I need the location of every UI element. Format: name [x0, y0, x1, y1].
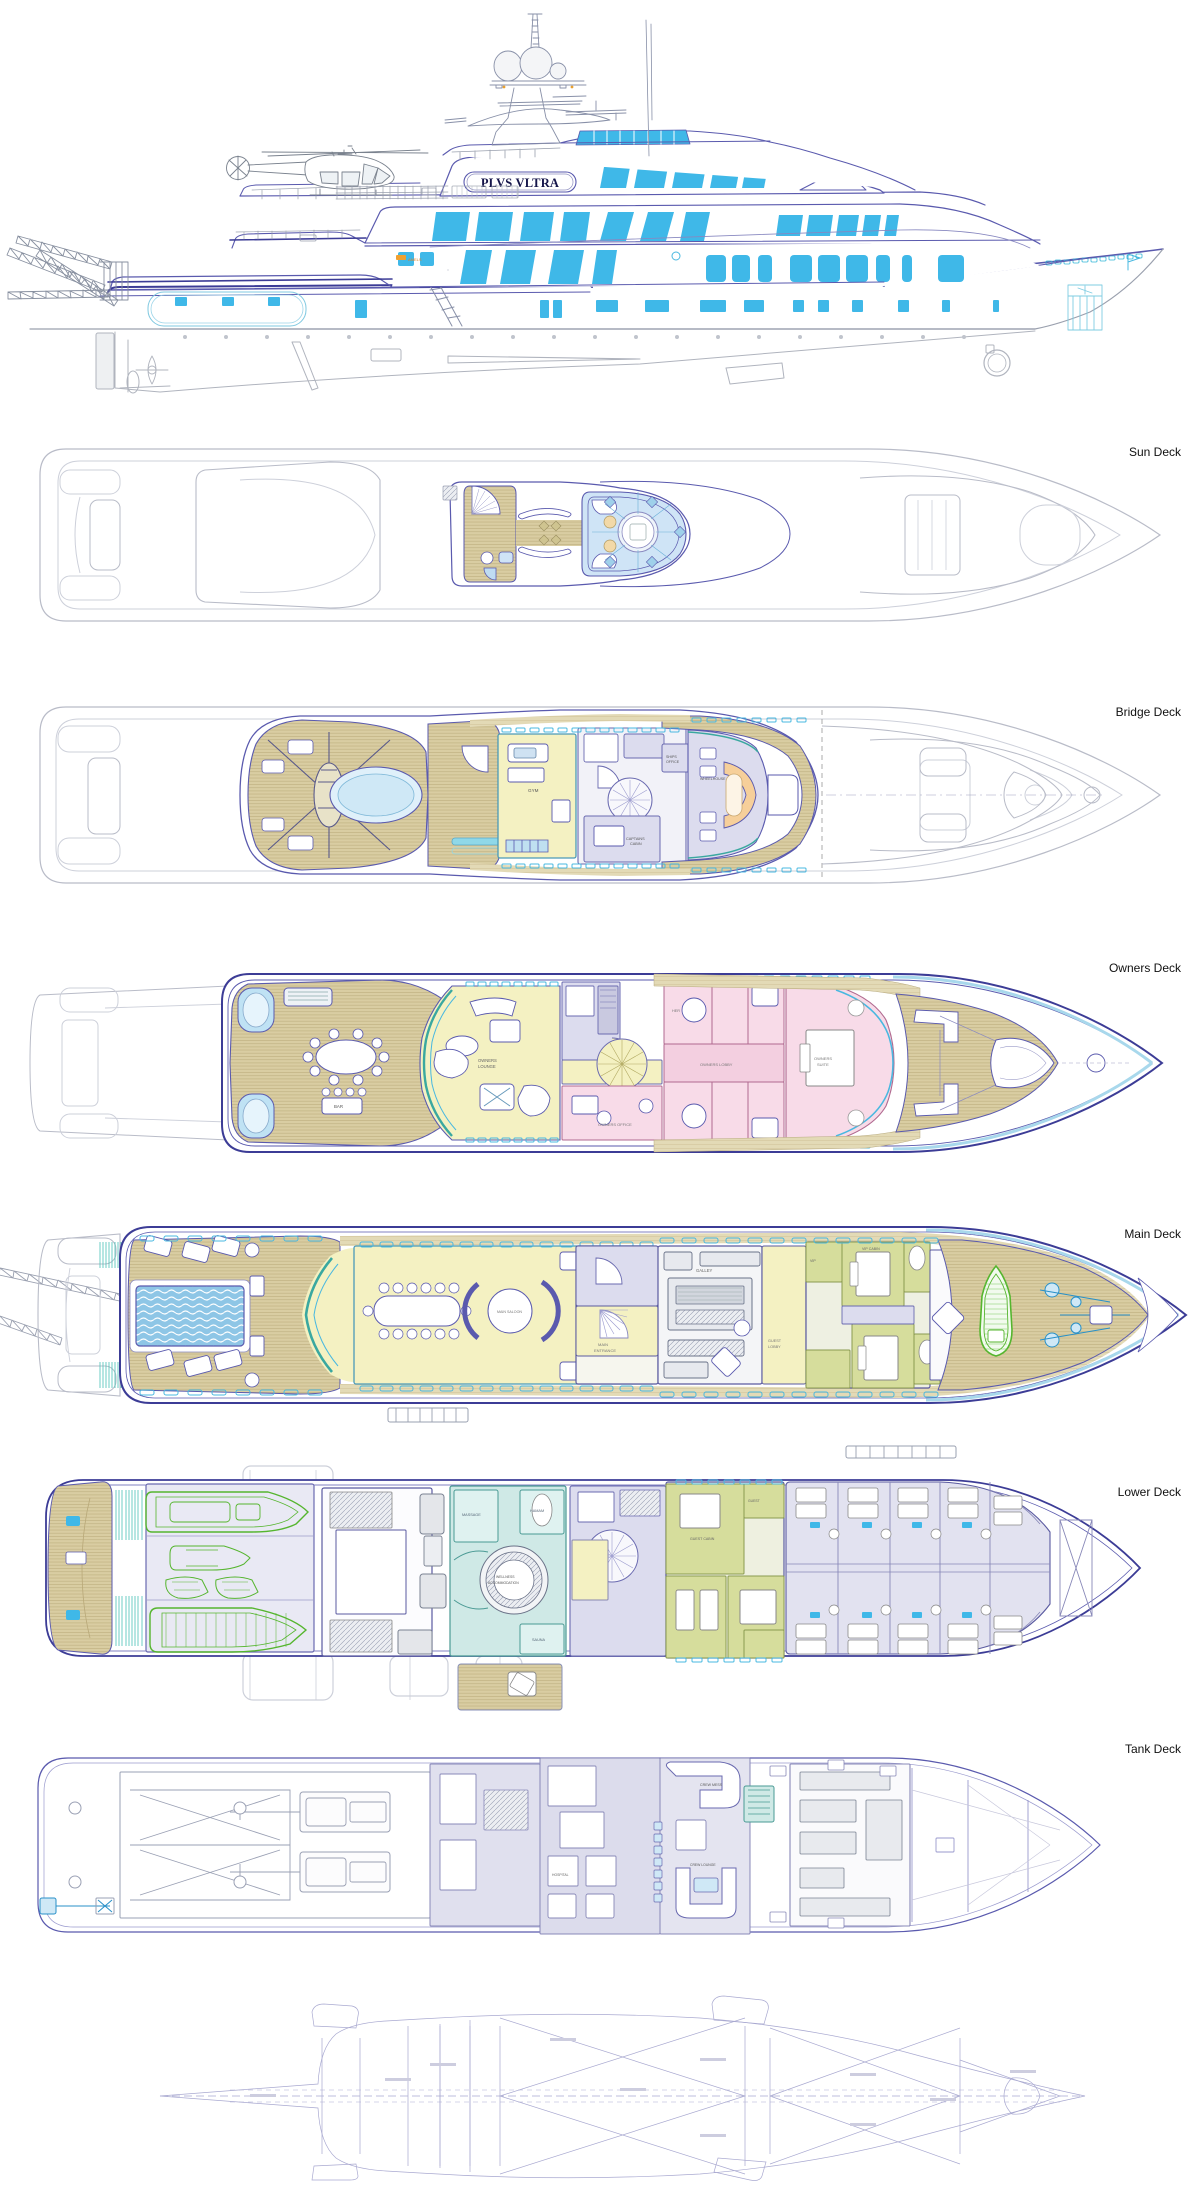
svg-text:Main Deck: Main Deck: [1124, 1227, 1182, 1241]
svg-text:OWNERS: OWNERS: [814, 1056, 832, 1061]
svg-text:LOUNGE: LOUNGE: [478, 1064, 496, 1069]
svg-text:GUEST: GUEST: [748, 1499, 760, 1503]
svg-text:SUITE: SUITE: [817, 1062, 829, 1067]
svg-text:MAIN SALOON: MAIN SALOON: [497, 1310, 522, 1314]
svg-text:MASSAGE: MASSAGE: [462, 1513, 481, 1517]
svg-text:OWNERS LOBBY: OWNERS LOBBY: [700, 1062, 733, 1067]
svg-text:ENTRANCE: ENTRANCE: [594, 1348, 616, 1353]
svg-text:Lower Deck: Lower Deck: [1118, 1485, 1182, 1499]
svg-text:Sun Deck: Sun Deck: [1129, 445, 1182, 459]
svg-text:VIP: VIP: [810, 1259, 816, 1263]
svg-text:HOSPITAL: HOSPITAL: [552, 1873, 569, 1877]
svg-text:LOBBY: LOBBY: [768, 1345, 781, 1349]
svg-text:CREW LOUNGE: CREW LOUNGE: [690, 1863, 716, 1867]
svg-text:AMELS: AMELS: [408, 257, 422, 262]
svg-text:GALLEY: GALLEY: [696, 1268, 713, 1273]
svg-text:CREW MESS: CREW MESS: [700, 1783, 723, 1787]
svg-text:PLVS VLTRA: PLVS VLTRA: [481, 176, 559, 190]
svg-text:OWNERS OFFICE: OWNERS OFFICE: [598, 1122, 632, 1127]
svg-text:Owners Deck: Owners Deck: [1109, 961, 1182, 975]
svg-text:SHIPS: SHIPS: [666, 755, 677, 759]
svg-text:VIP CABIN: VIP CABIN: [862, 1247, 880, 1251]
svg-text:CAPTAINS: CAPTAINS: [626, 837, 645, 841]
svg-text:CABIN: CABIN: [630, 842, 642, 846]
svg-text:SAUNA: SAUNA: [532, 1638, 546, 1642]
svg-text:WHEELHOUSE: WHEELHOUSE: [700, 777, 726, 781]
svg-text:HAMAM: HAMAM: [530, 1509, 544, 1513]
svg-text:OFFICE: OFFICE: [666, 760, 680, 764]
svg-text:Bridge Deck: Bridge Deck: [1116, 705, 1182, 719]
svg-text:HER: HER: [672, 1009, 680, 1013]
svg-text:WELLNESS: WELLNESS: [496, 1575, 515, 1579]
svg-text:GYM: GYM: [528, 788, 539, 793]
svg-text:GUEST: GUEST: [768, 1339, 782, 1343]
svg-text:BAR: BAR: [334, 1104, 343, 1109]
svg-text:GUEST CABIN: GUEST CABIN: [690, 1537, 715, 1541]
svg-text:OWNERS: OWNERS: [478, 1058, 497, 1063]
svg-text:Tank Deck: Tank Deck: [1125, 1742, 1182, 1756]
svg-text:MAIN: MAIN: [598, 1342, 608, 1347]
svg-text:ACCOMMODATION: ACCOMMODATION: [488, 1581, 519, 1585]
